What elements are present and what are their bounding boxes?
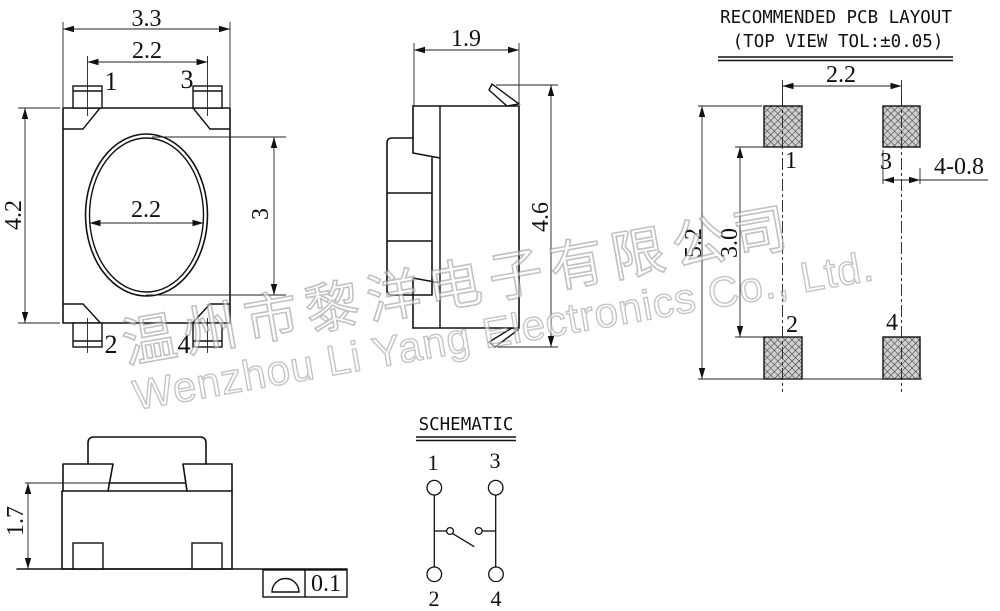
schematic-pin3-node bbox=[488, 480, 503, 495]
front-view-flange-right bbox=[183, 464, 232, 491]
front-view-button bbox=[88, 437, 206, 464]
dim-overall-height: 4.2 bbox=[1, 200, 27, 230]
dim-pad-size: 4-0.8 bbox=[934, 154, 984, 180]
schematic-pin2-label: 2 bbox=[429, 586, 440, 611]
pcb-subtitle: (TOP VIEW TOL:±0.05) bbox=[733, 32, 944, 52]
watermark: 温州市黎洋电子有限公司 Wenzhou Li Yang Electronics … bbox=[117, 195, 877, 419]
schematic-contact-left bbox=[447, 528, 454, 535]
top-view-corner-tl bbox=[64, 108, 101, 129]
flatness-value: 0.1 bbox=[311, 571, 341, 597]
top-view-corner-tr bbox=[193, 108, 230, 129]
front-view-foot-right bbox=[192, 543, 222, 569]
dim-pad-pitch: 2.2 bbox=[826, 62, 856, 88]
schematic-contact-right bbox=[475, 528, 482, 535]
schematic-switch-arm bbox=[452, 533, 474, 546]
top-view-pin1-label: 1 bbox=[105, 67, 118, 96]
top-view-corner-bl bbox=[64, 304, 101, 323]
front-view-flange-left bbox=[63, 464, 113, 491]
pcb-title: RECOMMENDED PCB LAYOUT bbox=[720, 8, 952, 28]
top-view-pin2-label: 2 bbox=[105, 330, 118, 359]
top-view-pin3-label: 3 bbox=[181, 65, 194, 94]
drawing-svg: 3.3 2.2 4.2 3 2.2 1 3 2 4 bbox=[0, 0, 1000, 611]
pcb-pad-2 bbox=[764, 337, 802, 379]
dim-button-width: 2.2 bbox=[131, 197, 161, 223]
schematic: SCHEMATIC 1 3 2 4 bbox=[416, 415, 516, 611]
schematic-pin1-node bbox=[427, 480, 442, 495]
dim-overall-width: 3.3 bbox=[132, 6, 162, 32]
front-view-foot-left bbox=[73, 543, 103, 569]
schematic-title: SCHEMATIC bbox=[419, 415, 514, 435]
pcb-pad3-label: 3 bbox=[880, 149, 892, 175]
dim-base-height: 1.7 bbox=[3, 506, 29, 536]
dim-pin-pitch: 2.2 bbox=[132, 38, 162, 64]
pcb-pad4-label: 4 bbox=[886, 310, 898, 336]
schematic-pin1-label: 1 bbox=[428, 450, 439, 475]
dim-depth: 1.9 bbox=[451, 26, 481, 52]
front-view: 1.7 0.1 bbox=[3, 437, 347, 597]
schematic-pin4-node bbox=[489, 567, 504, 582]
pcb-layout: RECOMMENDED PCB LAYOUT (TOP VIEW TOL:±0.… bbox=[681, 8, 988, 392]
pcb-pad-1 bbox=[764, 106, 802, 147]
side-view-top-lead bbox=[489, 84, 519, 106]
dim-button-height: 3 bbox=[248, 208, 274, 220]
schematic-pin3-label: 3 bbox=[490, 448, 501, 473]
dim-total-height: 4.6 bbox=[528, 202, 554, 232]
schematic-pin4-label: 4 bbox=[491, 586, 502, 611]
tact-switch-drawing-canvas: 3.3 2.2 4.2 3 2.2 1 3 2 4 bbox=[0, 0, 1000, 611]
pcb-pad1-label: 1 bbox=[785, 148, 797, 174]
pcb-pad2-label: 2 bbox=[786, 312, 798, 338]
surface-profile-icon bbox=[272, 579, 299, 593]
schematic-pin2-node bbox=[427, 567, 442, 582]
